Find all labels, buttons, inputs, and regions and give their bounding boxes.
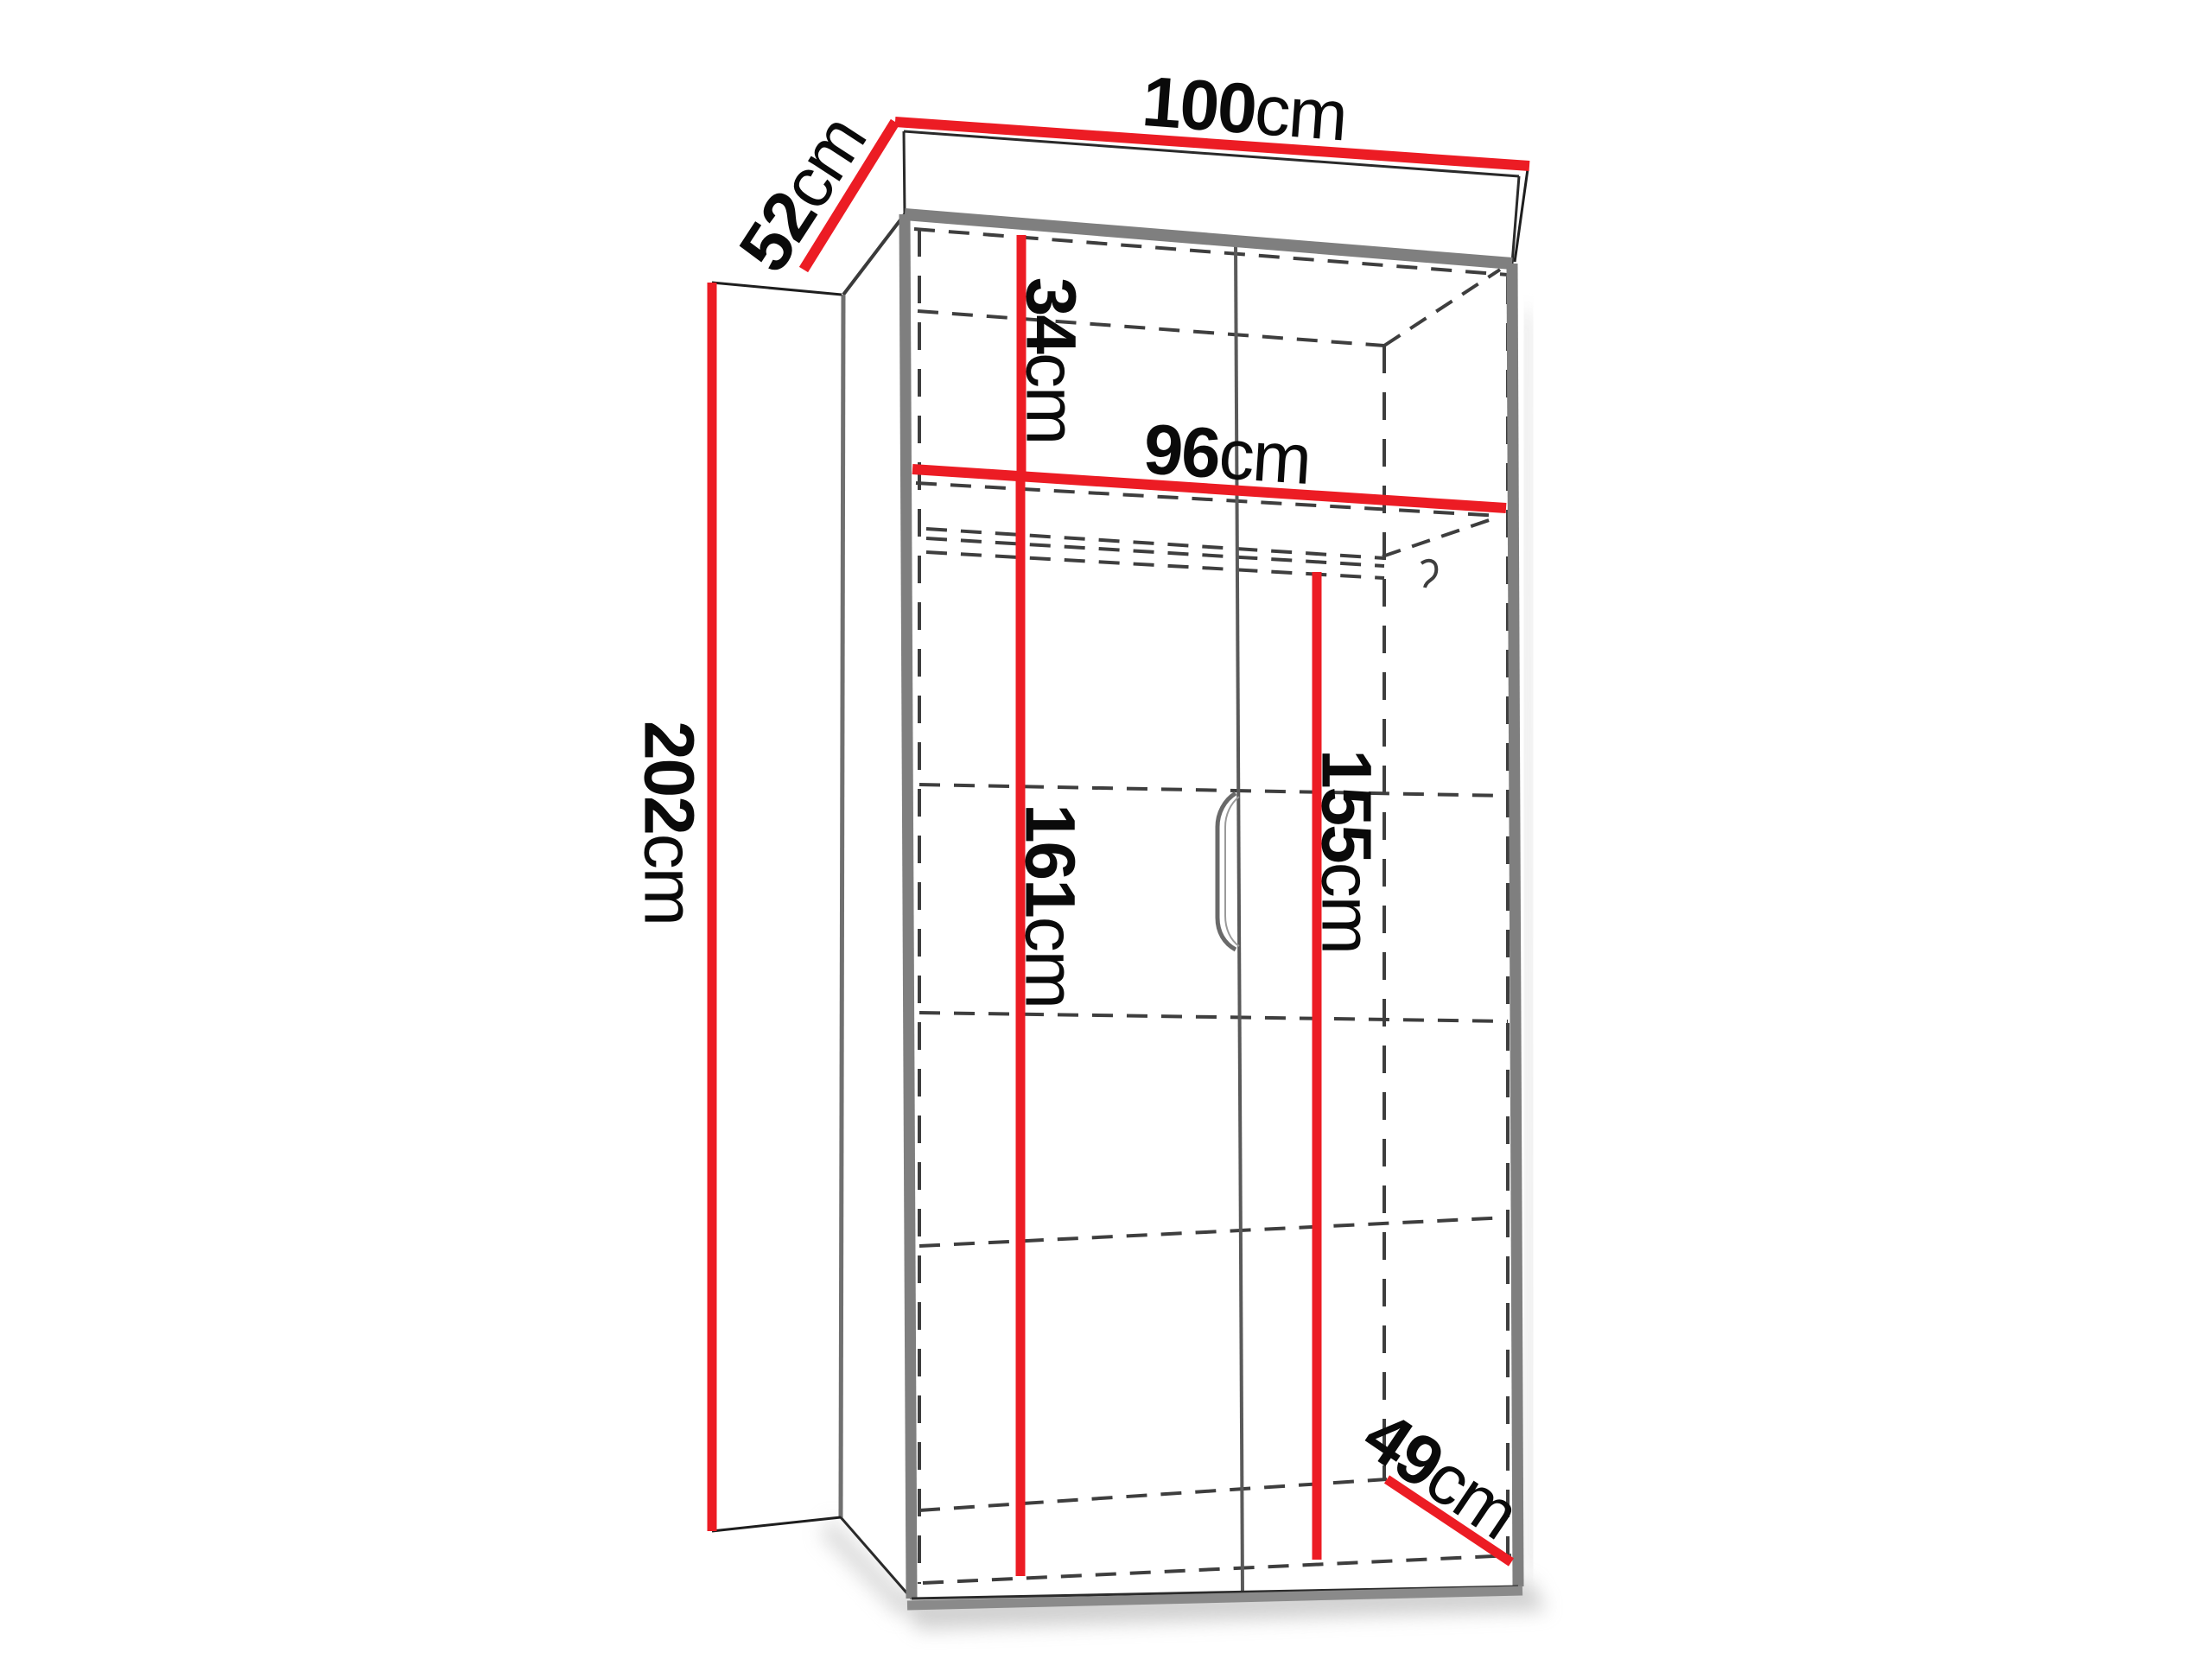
front-left-edge: [905, 214, 912, 1599]
top-left-depth-edge: [904, 131, 905, 214]
front-right-edge: [1512, 264, 1518, 1586]
dim-value-width: 100: [1140, 62, 1258, 149]
dim-label-interior-width: 96cm: [1141, 410, 1313, 499]
page-background: 100cm 52cm 202cm 34cm 96cm 161cm 155cm 4…: [0, 0, 2212, 1659]
dim-unit-width: cm: [1252, 71, 1349, 156]
height-ext-top: [712, 283, 842, 295]
dim-unit-interior-height-left: cm: [1010, 917, 1089, 1007]
dim-label-width: 100cm: [1140, 62, 1349, 156]
side-back-edge: [841, 295, 843, 1517]
dim-unit-interior-height-right: cm: [1306, 862, 1385, 953]
dim-unit-interior-width: cm: [1217, 415, 1313, 499]
dim-value-interior-width: 96: [1141, 410, 1222, 493]
dim-label-interior-height-left: 161cm: [1010, 804, 1089, 1007]
dim-label-height: 202cm: [629, 721, 708, 925]
dim-unit-top-compartment: cm: [1011, 353, 1090, 443]
dim-label-interior-height-right: 155cm: [1306, 749, 1385, 953]
dim-unit-height: cm: [629, 834, 708, 925]
dim-value-interior-height-right: 155: [1306, 749, 1385, 862]
dim-value-interior-height-left: 161: [1010, 804, 1089, 917]
dim-value-top-compartment: 34: [1011, 277, 1090, 355]
right-side-shadow: [1526, 311, 1531, 1573]
wardrobe-diagram-svg: 100cm 52cm 202cm 34cm 96cm 161cm 155cm 4…: [0, 0, 2212, 1659]
dim-value-height: 202: [629, 721, 708, 834]
dim-label-top-compartment: 34cm: [1011, 277, 1090, 444]
height-ext-bottom: [712, 1517, 841, 1531]
dim-label-depth: 52cm: [724, 103, 880, 285]
